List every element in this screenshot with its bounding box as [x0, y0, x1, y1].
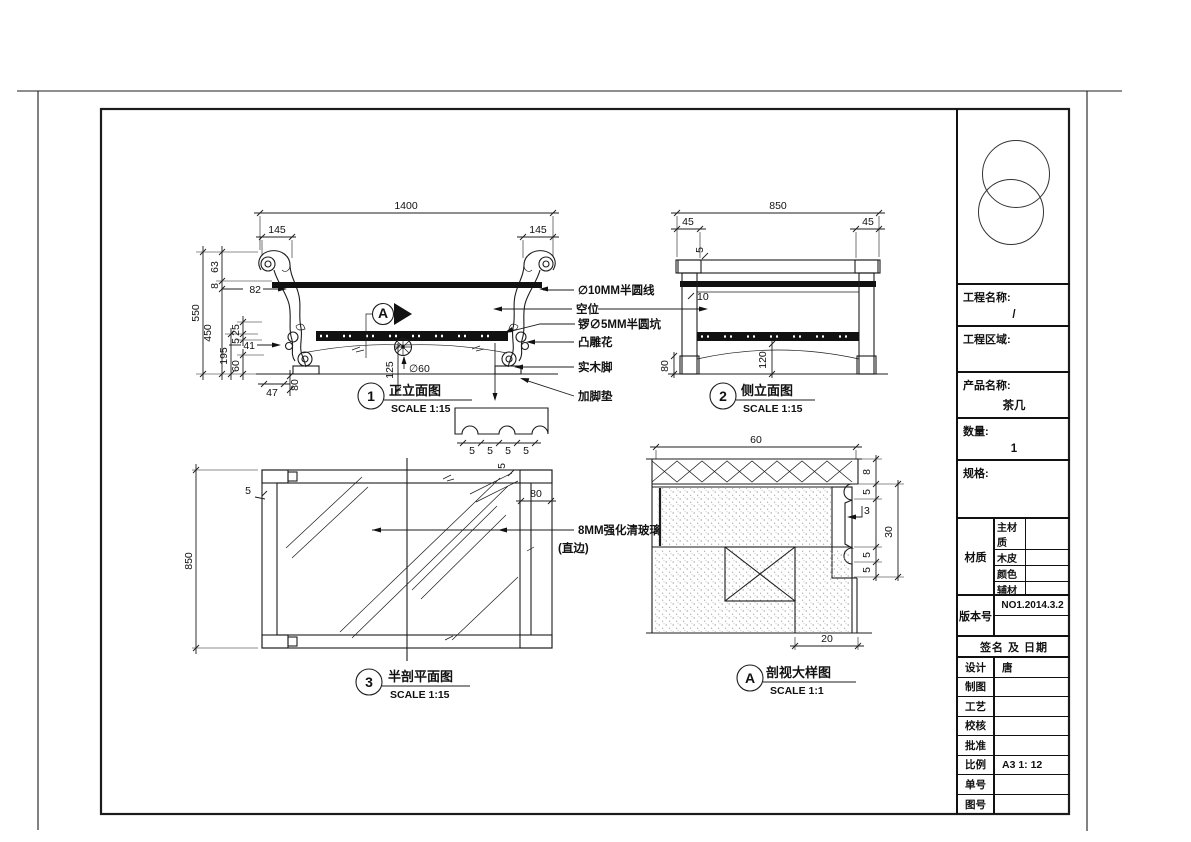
spec-label: 规格:: [958, 461, 1070, 481]
signature-rows: 设计唐 制图 工艺 校核 批准 比例A3 1: 12 单号 图号: [958, 658, 1070, 814]
row-drafter: 制图: [958, 678, 1070, 698]
field-version: 版本号 NO1.2014.3.2: [958, 596, 1070, 637]
side-scale: SCALE 1:15: [743, 403, 803, 415]
side-apron-curve: [697, 350, 859, 359]
detail-badge: A: [745, 670, 755, 686]
plan-view-title: 3 半剖平面图 SCALE 1:15: [356, 669, 470, 701]
plan-view: 850 5 5 80 8MM强化清玻璃 (直边) 3 半剖平面图 SCALE 1…: [183, 458, 662, 701]
front-scale: SCALE 1:15: [391, 403, 451, 415]
dim-side-5: 5: [694, 247, 706, 253]
callout-void: 空位: [576, 302, 599, 316]
side-leg-right: [859, 273, 874, 374]
dim-front-195: 195: [218, 347, 230, 365]
logo-circle-bottom: [978, 179, 1044, 245]
dim-front-5: 5: [230, 338, 242, 344]
side-elevation-view: 850 45 45 5 10 80 120 2 侧立面图 SCALE 1:15: [659, 200, 888, 415]
dim-side-width: 850: [769, 200, 787, 212]
front-badge: 1: [367, 388, 375, 404]
groove-dim-5c: 5: [505, 445, 511, 457]
callout-halfround-line: ∅10MM半圆线: [578, 283, 655, 297]
dim-front-dia60: ∅60: [409, 363, 430, 375]
inner-frame: [101, 109, 1069, 814]
material-row-color: 颜色: [995, 566, 1026, 581]
logo-cell: [958, 109, 1070, 285]
dim-side-120: 120: [757, 351, 769, 369]
row-craft: 工艺: [958, 697, 1070, 717]
dim-front-47: 47: [266, 387, 278, 399]
tabletop-edge-band: [272, 282, 542, 288]
material-row-main: 主材质: [995, 519, 1026, 549]
sign-date-header: 签名 及 日期: [958, 637, 1070, 658]
dim-front-width: 1400: [394, 200, 418, 212]
title-block: 工程名称: / 工程区域: 产品名称: 茶几 数量: 1 规格: 材质 主材质 …: [956, 109, 1070, 814]
material-row-veneer: 木皮: [995, 550, 1026, 565]
row-checker: 校核: [958, 717, 1070, 737]
dim-front-8: 8: [209, 283, 221, 289]
detail-view-title: A 剖视大样图 SCALE 1:1: [737, 665, 856, 697]
detail-marker-A: A: [366, 303, 412, 358]
dim-front-82: 82: [249, 284, 261, 296]
callout-tempered-glass: 8MM强化清玻璃: [578, 523, 662, 537]
dim-plan-80: 80: [530, 488, 542, 500]
plan-badge: 3: [365, 674, 373, 690]
dim-detail-3: 3: [864, 505, 870, 517]
field-material: 材质 主材质 木皮 颜色 辅材: [958, 519, 1070, 596]
detail-title: 剖视大样图: [766, 665, 831, 680]
table-leg-left: [259, 251, 319, 374]
dim-front-overhang-right: 145: [529, 224, 547, 236]
dim-front-25: 25: [230, 324, 242, 336]
plan-scale: SCALE 1:15: [390, 689, 450, 701]
material-veneer-value: [1026, 550, 1070, 565]
groove-dim-5b: 5: [487, 445, 493, 457]
version-label: 版本号: [958, 596, 995, 635]
dim-front-41: 41: [243, 340, 255, 352]
row-designer: 设计唐: [958, 658, 1070, 678]
row-drawing-no: 图号: [958, 795, 1070, 815]
side-title: 侧立面图: [741, 383, 793, 398]
board-core-upper: [657, 488, 831, 546]
dim-detail-5b: 5: [861, 552, 873, 558]
row-approver: 批准: [958, 736, 1070, 756]
side-tabletop: [676, 260, 880, 273]
dim-detail-5a: 5: [861, 489, 873, 495]
material-aux-value: [1026, 582, 1070, 596]
dim-detail-30: 30: [883, 526, 895, 538]
dim-detail-60: 60: [750, 434, 762, 446]
version-empty: [995, 616, 1070, 635]
plan-title: 半剖平面图: [388, 669, 453, 684]
version-value: NO1.2014.3.2: [995, 596, 1070, 616]
callout-solidwood-leg: 实木脚: [578, 360, 613, 374]
callout-foot-pad: 加脚垫: [577, 389, 613, 403]
project-area-label: 工程区域:: [958, 327, 1070, 347]
front-elevation-view: A 1400 145 145 550 63 8 450 195 25 5 60 …: [190, 200, 708, 457]
board-core-lower: [654, 549, 851, 632]
dim-front-overhang-left: 145: [268, 224, 286, 236]
row-scale: 比例A3 1: 12: [958, 756, 1070, 776]
table-leg-right: [495, 251, 555, 374]
carved-flower-ornament: [395, 339, 412, 356]
field-project-area: 工程区域:: [958, 327, 1070, 373]
dim-plan-depth: 850: [183, 552, 195, 570]
detail-marker-label: A: [378, 305, 388, 321]
dim-side-80: 80: [659, 360, 671, 372]
field-project-name: 工程名称: /: [958, 285, 1070, 327]
product-name-value: 茶几: [958, 397, 1070, 413]
dim-front-height: 550: [190, 304, 202, 322]
field-product-name: 产品名称: 茶几: [958, 373, 1070, 419]
dim-front-450: 450: [202, 324, 214, 342]
quantity-label: 数量:: [958, 419, 1070, 439]
dim-front-60: 60: [230, 360, 242, 372]
front-title: 正立面图: [389, 383, 441, 398]
callout-relief-carving: 凸雕花: [578, 335, 613, 349]
field-quantity: 数量: 1: [958, 419, 1070, 461]
dim-side-45r: 45: [862, 216, 874, 228]
callout-straight-edge: (直边): [558, 541, 589, 555]
plan-glass-edge: [277, 483, 520, 635]
row-order-no: 单号: [958, 775, 1070, 795]
dim-detail-8: 8: [861, 469, 873, 475]
field-spec: 规格:: [958, 461, 1070, 519]
side-view-title: 2 侧立面图 SCALE 1:15: [710, 383, 815, 415]
project-name-value: /: [958, 309, 1070, 321]
material-main-value: [1026, 519, 1070, 549]
product-name-label: 产品名称:: [958, 373, 1070, 393]
dim-detail-5c: 5: [861, 567, 873, 573]
callout-routed-groove: 锣∅5MM半圆坑: [578, 317, 662, 331]
dim-plan-5a: 5: [245, 485, 251, 497]
detail-scale: SCALE 1:1: [770, 685, 824, 697]
dim-plan-5b: 5: [496, 463, 508, 469]
dim-front-125: 125: [384, 361, 396, 379]
groove-dim-5d: 5: [523, 445, 529, 457]
material-row-aux: 辅材: [995, 582, 1026, 596]
cad-sheet: A 1400 145 145 550 63 8 450 195 25 5 60 …: [0, 0, 1191, 842]
project-name-label: 工程名称:: [958, 285, 1070, 305]
dim-side-10: 10: [697, 291, 709, 303]
dim-detail-20: 20: [821, 633, 833, 645]
quantity-value: 1: [958, 443, 1070, 455]
dim-side-45l: 45: [682, 216, 694, 228]
groove-dim-5a: 5: [469, 445, 475, 457]
dim-front-63: 63: [209, 261, 221, 273]
material-label: 材质: [958, 519, 995, 594]
side-badge: 2: [719, 388, 727, 404]
material-color-value: [1026, 566, 1070, 581]
side-leg-left: [682, 273, 697, 374]
dim-front-80: 80: [289, 379, 301, 391]
section-detail-view: 60 8 5 5 5 30 3 20 A 剖视大样图 SCALE 1:1: [646, 434, 904, 697]
